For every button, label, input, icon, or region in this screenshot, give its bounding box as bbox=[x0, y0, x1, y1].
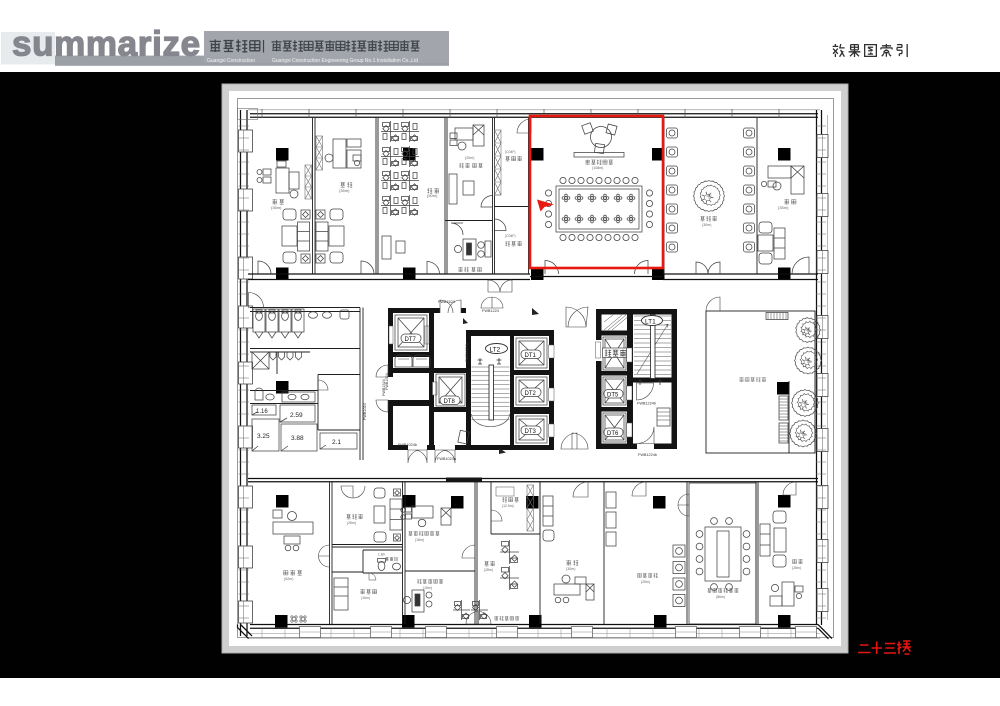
svg-text:DT6: DT6 bbox=[607, 431, 619, 437]
svg-text:Guangxi Construction: Guangxi Construction bbox=[207, 58, 255, 64]
svg-text:(15m): (15m) bbox=[423, 586, 432, 590]
svg-text:DT8: DT8 bbox=[444, 399, 456, 405]
svg-text:(12.5m): (12.5m) bbox=[502, 504, 514, 508]
svg-text:(35m): (35m) bbox=[778, 205, 789, 210]
svg-text:FWB1224: FWB1224 bbox=[482, 309, 499, 313]
svg-text:FWB1224b: FWB1224b bbox=[638, 453, 657, 457]
svg-text:(28m): (28m) bbox=[792, 566, 801, 570]
svg-text:(52m): (52m) bbox=[284, 577, 293, 581]
svg-text:1.16: 1.16 bbox=[256, 409, 268, 415]
svg-text:DT2: DT2 bbox=[525, 391, 537, 397]
svg-text:3.88: 3.88 bbox=[291, 435, 304, 442]
svg-text:FWB1524: FWB1524 bbox=[438, 300, 455, 304]
svg-text:FWB1024b: FWB1024b bbox=[398, 443, 417, 447]
svg-text:FWB1524: FWB1524 bbox=[382, 379, 386, 396]
svg-text:(50m): (50m) bbox=[427, 193, 438, 198]
svg-text:(108m): (108m) bbox=[592, 166, 603, 170]
svg-text:(C04F): (C04F) bbox=[505, 234, 516, 238]
svg-text:(28m): (28m) bbox=[484, 568, 493, 572]
svg-text:Guangxi Construction Engineeri: Guangxi Construction Engineering Group N… bbox=[272, 58, 418, 64]
svg-text:(25m): (25m) bbox=[641, 580, 650, 584]
svg-text:(C04F): (C04F) bbox=[505, 150, 516, 154]
svg-text:(35m): (35m) bbox=[339, 188, 350, 193]
svg-text:LT2: LT2 bbox=[490, 347, 501, 354]
svg-text:2.59: 2.59 bbox=[290, 412, 303, 419]
svg-text:(20m): (20m) bbox=[465, 156, 474, 160]
svg-text:FWB1224b: FWB1224b bbox=[637, 402, 656, 406]
svg-text:DT5: DT5 bbox=[607, 393, 619, 399]
svg-text:(26m): (26m) bbox=[347, 521, 356, 525]
svg-text:summarize: summarize bbox=[12, 25, 201, 64]
svg-text:(86m): (86m) bbox=[716, 595, 725, 599]
svg-text:DT7: DT7 bbox=[405, 337, 417, 343]
svg-text:LT1: LT1 bbox=[645, 319, 656, 326]
svg-text:2.1: 2.1 bbox=[332, 439, 341, 446]
svg-text:(35m): (35m) bbox=[271, 205, 282, 210]
svg-text:3.25: 3.25 bbox=[257, 433, 270, 440]
svg-text:FWB1024: FWB1024 bbox=[363, 403, 367, 420]
svg-text:1.3m: 1.3m bbox=[378, 553, 385, 557]
svg-text:(30m): (30m) bbox=[702, 223, 711, 227]
svg-text:(18m): (18m) bbox=[415, 538, 424, 542]
svg-text:FWB1024a: FWB1024a bbox=[437, 457, 457, 461]
svg-text:DT3: DT3 bbox=[525, 429, 537, 435]
svg-text:(16m): (16m) bbox=[361, 596, 370, 600]
svg-text:DT1: DT1 bbox=[525, 353, 537, 359]
svg-text:FWB1024b: FWB1024b bbox=[465, 343, 469, 362]
svg-text:(30m): (30m) bbox=[566, 567, 575, 571]
